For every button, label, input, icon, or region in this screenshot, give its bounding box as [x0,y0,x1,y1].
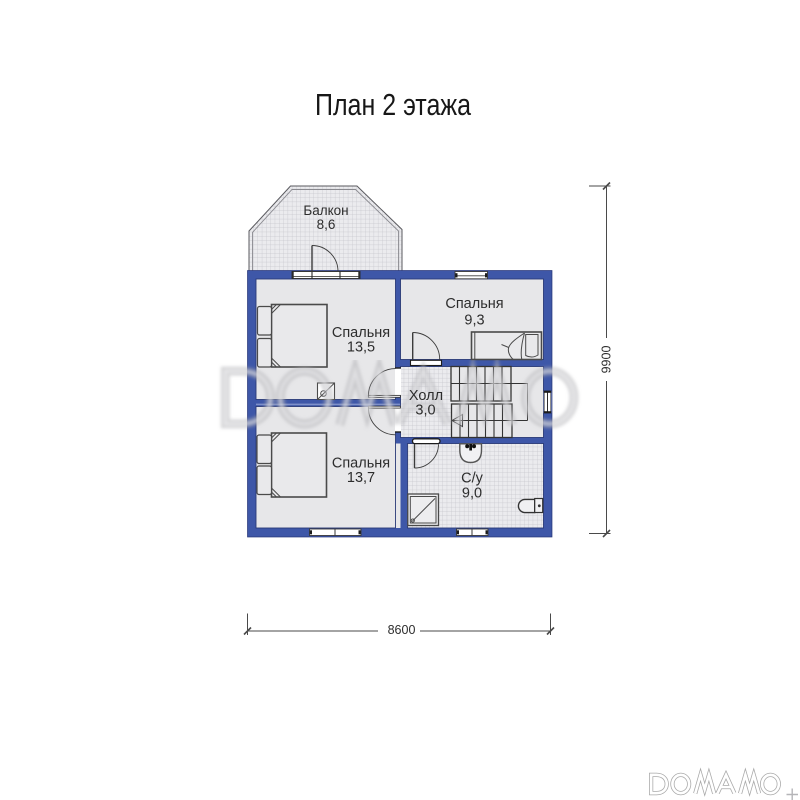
svg-text:9900: 9900 [600,346,614,374]
svg-text:8600: 8600 [388,623,416,637]
svg-text:3,0: 3,0 [415,403,435,419]
svg-text:Балкон: Балкон [303,203,348,218]
svg-text:С/у: С/у [461,471,484,487]
svg-text:9,3: 9,3 [464,313,484,329]
svg-text:13,5: 13,5 [347,340,375,356]
svg-text:8,6: 8,6 [317,217,336,232]
svg-text:Спальня: Спальня [445,296,503,312]
svg-text:План 2 этажа: План 2 этажа [315,88,471,122]
svg-text:9,0: 9,0 [462,486,482,502]
svg-text:13,7: 13,7 [347,470,375,486]
